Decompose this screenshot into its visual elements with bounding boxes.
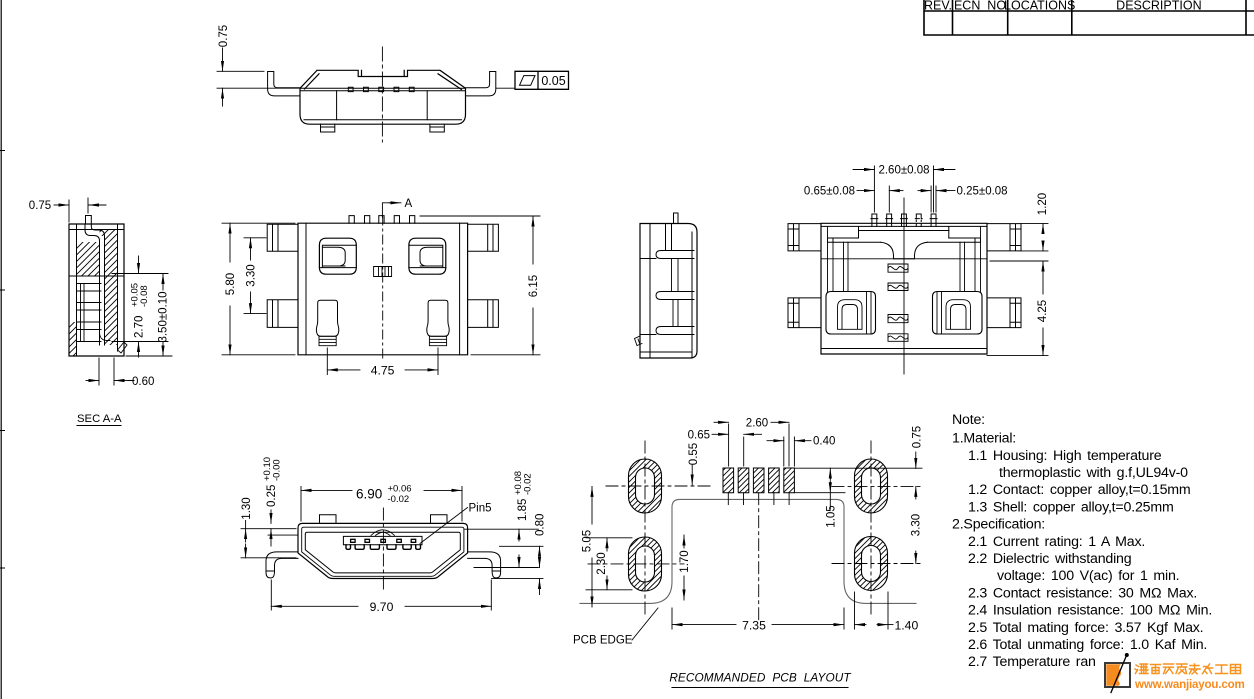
svg-text:RECOMMANDED PCB LAYOUT: RECOMMANDED PCB LAYOUT [669,671,851,685]
svg-text:6.15: 6.15 [528,275,540,297]
svg-text:1.05: 1.05 [826,505,838,527]
svg-text:6.90: 6.90 [356,487,382,502]
svg-text:0.75: 0.75 [912,426,924,448]
svg-text:LOCATIONS: LOCATIONS [1004,0,1075,13]
svg-text:0.40: 0.40 [813,436,835,448]
svg-text:1.30: 1.30 [241,497,253,519]
svg-text:1.40: 1.40 [895,618,919,632]
svg-text:2.5 Total mating force: 3.: 2.5 Total mating force: 3.57 Kgf Max. [968,620,1203,636]
svg-text:DESCRIPTION: DESCRIPTION [1116,0,1201,13]
svg-text:2.6 Total unmating force:: 2.6 Total unmating force: 1.0 Kaf Min. [968,637,1207,653]
svg-text:2.4 Insulation resistance:: 2.4 Insulation resistance: 100 MΩ Min. [968,603,1212,619]
svg-text:1.20: 1.20 [1037,193,1049,215]
svg-text:ECN NO: ECN NO [954,0,1006,13]
svg-text:0.25±0.08: 0.25±0.08 [957,186,1008,198]
svg-text:0.80: 0.80 [535,514,547,536]
svg-text:Pin5: Pin5 [469,503,492,515]
svg-text:2.70: 2.70 [134,316,146,338]
svg-text:REV.: REV. [924,0,952,13]
svg-text:7.35: 7.35 [742,618,766,632]
svg-text:0.05: 0.05 [541,74,565,88]
svg-text:2.1 Current rating: 1 A M: 2.1 Current rating: 1 A Max. [968,534,1145,550]
svg-text:voltage: 100 V(ac) for 1: voltage: 100 V(ac) for 1 min. [997,568,1179,584]
svg-text:-0.02: -0.02 [388,494,410,505]
svg-text:1.70: 1.70 [679,550,691,572]
svg-text:2.60: 2.60 [746,417,768,429]
svg-text:1.85: 1.85 [517,499,529,521]
svg-text:1.Material:: 1.Material: [952,431,1016,447]
svg-text:4.25: 4.25 [1037,300,1049,322]
svg-text:-0.00: -0.00 [272,459,283,481]
svg-text:4.75: 4.75 [371,364,395,378]
svg-text:Note:: Note: [952,412,985,428]
svg-text:0.75: 0.75 [218,25,230,47]
svg-text:SEC A-A: SEC A-A [77,413,122,425]
svg-text:A: A [405,198,413,210]
svg-text:3.30: 3.30 [911,514,923,536]
svg-text:0.60: 0.60 [132,376,154,388]
svg-text:2.2 Dielectric withstanding: 2.2 Dielectric withstanding [968,551,1131,567]
svg-text:5.05: 5.05 [582,530,594,552]
svg-text:0.55: 0.55 [688,443,700,465]
svg-text:1.2 Contact: copper alloy,t: 1.2 Contact: copper alloy,t=0.15mm [968,482,1191,498]
svg-text:PCB EDGE: PCB EDGE [573,635,633,647]
svg-text:1.1 Housing: High temperatu: 1.1 Housing: High temperature [968,448,1162,464]
svg-text:5.80: 5.80 [225,273,237,295]
svg-text:0.65±0.08: 0.65±0.08 [804,186,855,198]
svg-text:thermoplastic with g.f,UL94v: thermoplastic with g.f,UL94v-0 [999,465,1188,481]
svg-text:0.65: 0.65 [688,429,710,441]
svg-text:-0.02: -0.02 [523,473,534,495]
svg-text:2.7 Temperature ran: 2.7 Temperature ran [968,654,1096,670]
svg-text:-0.08: -0.08 [139,285,150,307]
svg-text:1.3 Shell: copper alloy,t=0: 1.3 Shell: copper alloy,t=0.25mm [968,499,1174,515]
svg-text:0.75: 0.75 [29,200,51,212]
svg-text:+0.06: +0.06 [388,484,412,495]
svg-text:3.30: 3.30 [246,264,258,286]
svg-text:0.25: 0.25 [266,485,278,507]
svg-text:www.wanjiayou.com: www.wanjiayou.com [1134,678,1245,691]
svg-text:2.30: 2.30 [596,552,608,574]
svg-text:2.Specification:: 2.Specification: [952,517,1045,533]
svg-text:3.50±0.10: 3.50±0.10 [158,291,170,342]
svg-text:2.60±0.08: 2.60±0.08 [878,165,929,177]
svg-text:9.70: 9.70 [370,600,394,614]
svg-text:2.3 Contact resistance: 30: 2.3 Contact resistance: 30 MΩ Max. [968,585,1197,601]
